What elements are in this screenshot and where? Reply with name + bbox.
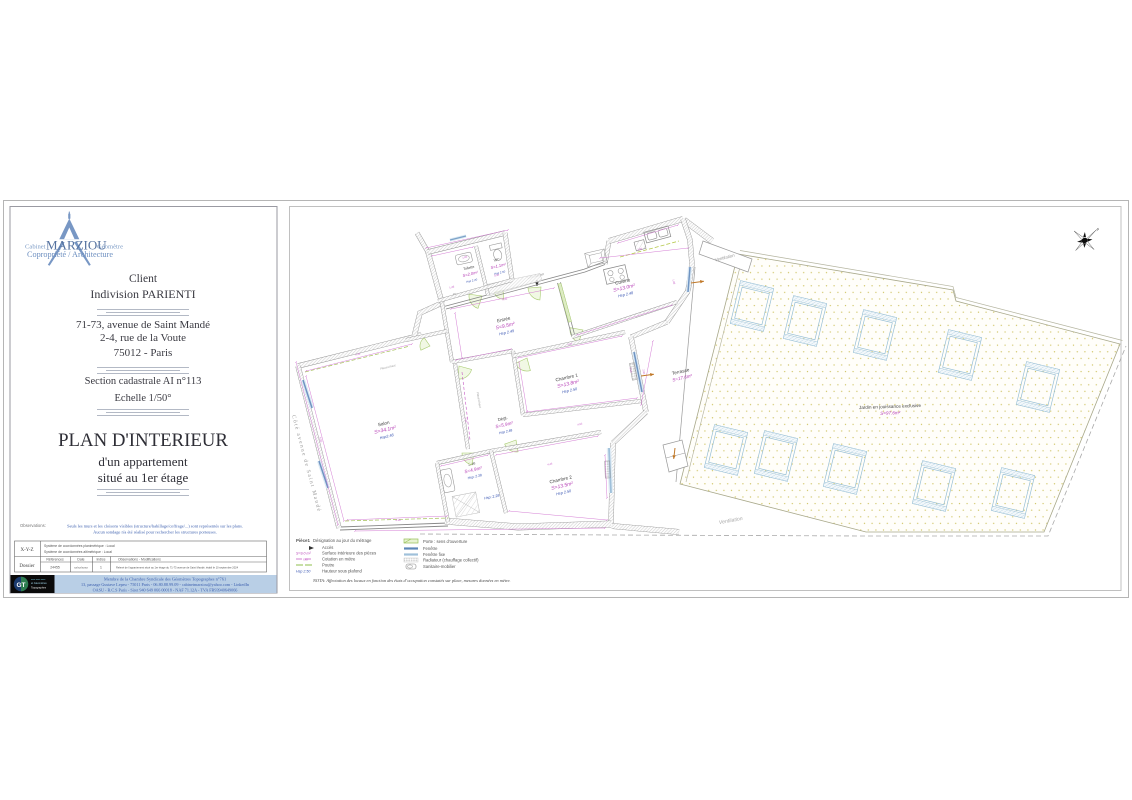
svg-text:Désignation au jour du métrage: Désignation au jour du métrage — [313, 538, 372, 543]
svg-text:Observations - Modifications: Observations - Modifications — [118, 558, 161, 562]
svg-text:75012 - Paris: 75012 - Paris — [114, 347, 173, 359]
svg-text:Références: Références — [46, 558, 64, 562]
svg-text:et Géomètres: et Géomètres — [31, 581, 47, 585]
svg-text:Observations:: Observations: — [20, 523, 46, 528]
svg-text:Fenêtre fixe: Fenêtre fixe — [423, 552, 446, 557]
svg-text:PLAN D'INTERIEUR: PLAN D'INTERIEUR — [58, 430, 228, 451]
svg-text:Section cadastrale AI n°113: Section cadastrale AI n°113 — [85, 376, 202, 387]
svg-text:Aucun sondage n'a été réalisé: Aucun sondage n'a été réalisé pour reche… — [93, 530, 217, 535]
svg-text:Pièce1: Pièce1 — [296, 538, 310, 543]
svg-text:1: 1 — [100, 566, 102, 570]
svg-text:Hsp 2.50: Hsp 2.50 — [296, 570, 310, 574]
svg-text:2-4, rue de la Voute: 2-4, rue de la Voute — [100, 332, 186, 344]
svg-text:Fenêtre: Fenêtre — [423, 546, 438, 551]
svg-text:Seuls les murs et les cloisons: Seuls les murs et les cloisons visibles … — [67, 524, 243, 529]
svg-text:Dossier: Dossier — [19, 564, 35, 569]
svg-text:Système de coordonnées planimé: Système de coordonnées planimétrique : L… — [44, 544, 115, 548]
svg-text:Date: Date — [77, 558, 84, 562]
svg-text:situé au 1er étage: situé au 1er étage — [98, 470, 189, 485]
svg-text:S=97.6m²: S=97.6m² — [880, 410, 901, 416]
svg-text:Système de coordonnées altimét: Système de coordonnées altimétrique : Lo… — [44, 550, 112, 554]
svg-text:Porte : sens d'ouverture: Porte : sens d'ouverture — [423, 539, 468, 544]
svg-text:Accès: Accès — [322, 545, 333, 550]
svg-text:OASU - R.C.S Paris - Siret 940: OASU - R.C.S Paris - Siret 940 649 066 0… — [93, 588, 238, 593]
svg-text:Relevé de l'appartement situé: Relevé de l'appartement situé au 1er éta… — [116, 565, 239, 569]
svg-text:X-Y-Z: X-Y-Z — [20, 548, 33, 553]
svg-text:Copropriété / Architecture: Copropriété / Architecture — [27, 250, 113, 259]
svg-text:xx/xx/xxxx: xx/xx/xxxx — [74, 566, 88, 570]
svg-text:24455: 24455 — [50, 566, 60, 570]
svg-text:Echelle 1/50°: Echelle 1/50° — [115, 393, 172, 404]
svg-text:71-73, avenue de Saint Mandé: 71-73, avenue de Saint Mandé — [76, 319, 210, 331]
svg-text:Indivision PARIENTI: Indivision PARIENTI — [90, 287, 195, 301]
svg-text:Sanitaire-mobilier: Sanitaire-mobilier — [423, 564, 456, 569]
svg-text:Radiateur (chauffage collectif: Radiateur (chauffage collectif) — [423, 558, 479, 563]
svg-text:Poutre: Poutre — [322, 563, 335, 568]
svg-text:d'un appartement: d'un appartement — [98, 454, 188, 469]
svg-text:Indice: Indice — [96, 558, 105, 562]
svg-text:Client: Client — [129, 273, 158, 285]
svg-text:Topographes: Topographes — [31, 586, 47, 590]
svg-text:Surface intérieure des pièces: Surface intérieure des pièces — [322, 551, 376, 556]
svg-text:S=9.0 m²: S=9.0 m² — [296, 552, 311, 556]
svg-text:Membre de la Chambre Syndicale: Membre de la Chambre Syndicale des Géomè… — [104, 576, 226, 581]
svg-text:Cotation en mètre: Cotation en mètre — [322, 557, 356, 562]
svg-text:xxx: xxx — [303, 558, 308, 562]
svg-text:Hauteur sous plafond: Hauteur sous plafond — [322, 569, 362, 574]
svg-text:4.18: 4.18 — [395, 518, 401, 522]
svg-text:xxxx xxxx xxxx: xxxx xxxx xxxx — [31, 579, 46, 581]
svg-text:GT: GT — [16, 582, 25, 589]
